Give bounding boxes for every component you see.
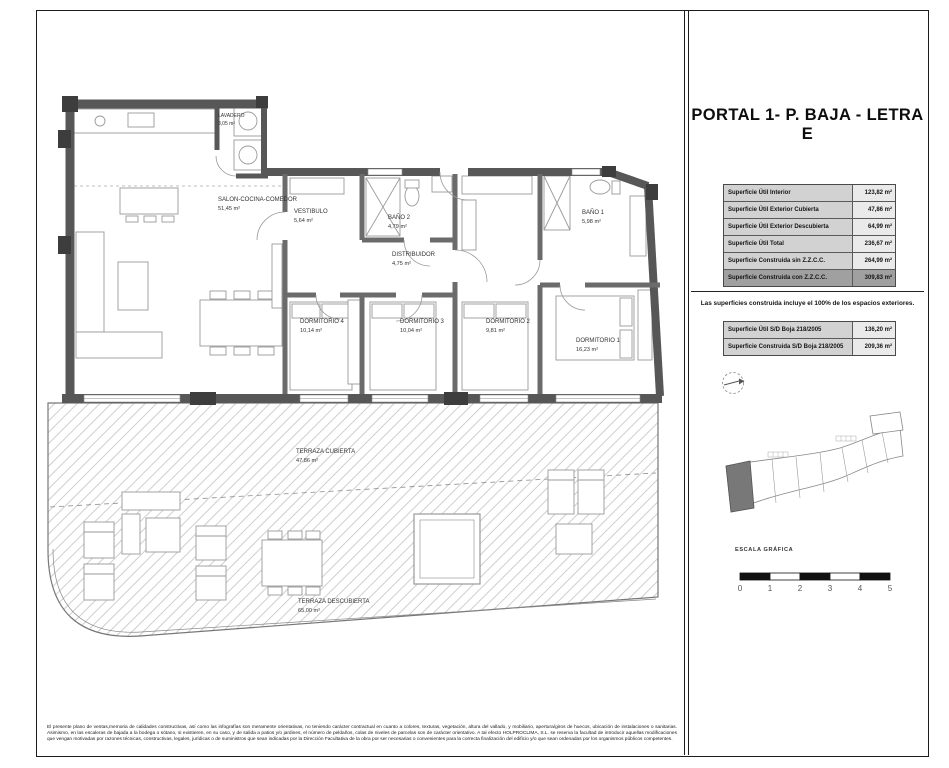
row-label: Superficie Construida con Z.Z.C.C. bbox=[724, 270, 853, 286]
table-row: Superficie Construida sin Z.Z.C.C. 264,9… bbox=[724, 253, 895, 270]
scale-tick: 5 bbox=[884, 584, 896, 593]
room-area-dorm2: 9,81 m² bbox=[486, 328, 505, 334]
scale-tick: 2 bbox=[794, 584, 806, 593]
room-label-terraza-descubierta: TERRAZA DESCUBIERTA bbox=[298, 599, 369, 605]
room-area-bano1: 5,98 m² bbox=[582, 219, 601, 225]
kitchen-island bbox=[120, 188, 178, 214]
bed-dorm3 bbox=[370, 302, 436, 390]
room-area-bano2: 4,79 m² bbox=[388, 224, 407, 230]
bed-dorm2 bbox=[462, 302, 528, 390]
room-area-dorm1: 16,23 m² bbox=[576, 347, 598, 353]
toilet-1 bbox=[590, 180, 610, 194]
room-label-bano1: BAÑO 1 bbox=[582, 209, 605, 216]
room-label-dorm4: DORMITORIO 4 bbox=[300, 319, 345, 325]
room-area-vestibulo: 5,64 m² bbox=[294, 218, 313, 224]
row-value: 309,83 m² bbox=[853, 270, 895, 286]
key-plan-highlighted-unit bbox=[726, 461, 754, 512]
north-arrow-icon bbox=[723, 373, 745, 394]
scale-bar bbox=[740, 573, 890, 580]
table-row: Superficie Útil Total 236,67 m² bbox=[724, 236, 895, 253]
table-row: Superficie Construida S/D Boja 218/2005 … bbox=[724, 339, 895, 355]
row-value: 136,20 m² bbox=[853, 322, 895, 338]
washer bbox=[234, 106, 262, 136]
table-row-highlighted: Superficie Construida con Z.Z.C.C. 309,8… bbox=[724, 270, 895, 286]
key-plan bbox=[726, 412, 903, 512]
table-row: Superficie Útil Interior 123,82 m² bbox=[724, 185, 895, 202]
row-label: Superficie Construida S/D Boja 218/2005 bbox=[724, 339, 853, 355]
scale-tick: 4 bbox=[854, 584, 866, 593]
room-label-dorm3: DORMITORIO 3 bbox=[400, 319, 445, 325]
row-label: Superficie Útil Interior bbox=[724, 185, 853, 201]
surface-note: Las superficies construida incluye el 10… bbox=[690, 300, 925, 307]
room-label-lavadero: LAVADERO bbox=[218, 113, 245, 119]
sofa bbox=[76, 232, 104, 332]
room-area-terraza-descubierta: 65,00 m² bbox=[298, 608, 320, 614]
scale-label: ESCALA GRÁFICA bbox=[735, 547, 793, 553]
toilet-2 bbox=[405, 186, 419, 206]
scale-tick: 0 bbox=[734, 584, 746, 593]
scale-tick: 3 bbox=[824, 584, 836, 593]
row-value: 264,99 m² bbox=[853, 253, 895, 269]
row-label: Superficie Útil S/D Boja 218/2005 bbox=[724, 322, 853, 338]
room-area-distribuidor: 4,75 m² bbox=[392, 261, 411, 267]
row-value: 123,82 m² bbox=[853, 185, 895, 201]
room-label-salon: SALON-COCINA-COMEDOR bbox=[218, 197, 298, 203]
legal-disclaimer: El presente plano de ventas,memoria de c… bbox=[47, 725, 677, 742]
row-value: 209,36 m² bbox=[853, 339, 895, 355]
row-label: Superficie Útil Total bbox=[724, 236, 853, 252]
room-label-terraza-cubierta: TERRAZA CUBIERTA bbox=[296, 449, 355, 455]
room-area-salon: 51,45 m² bbox=[218, 206, 240, 212]
dining-table bbox=[200, 300, 282, 346]
room-label-dorm1: DORMITORIO 1 bbox=[576, 338, 621, 344]
section-divider-line bbox=[691, 291, 924, 292]
bed-dorm4 bbox=[290, 302, 352, 390]
room-area-terraza-cubierta: 47,86 m² bbox=[296, 458, 318, 464]
row-label: Superficie Útil Exterior Descubierta bbox=[724, 219, 853, 235]
boja-table: Superficie Útil S/D Boja 218/2005 136,20… bbox=[723, 321, 896, 356]
page-title: PORTAL 1- P. BAJA - LETRA E bbox=[689, 106, 926, 144]
room-label-vestibulo: VESTIBULO bbox=[294, 209, 328, 215]
surface-table: Superficie Útil Interior 123,82 m² Super… bbox=[723, 184, 896, 287]
row-value: 236,67 m² bbox=[853, 236, 895, 252]
room-label-dorm2: DORMITORIO 2 bbox=[486, 319, 531, 325]
scale-tick: 1 bbox=[764, 584, 776, 593]
room-label-bano2: BAÑO 2 bbox=[388, 214, 411, 221]
room-label-distribuidor: DISTRIBUIDOR bbox=[392, 252, 436, 258]
room-area-dorm4: 10,14 m² bbox=[300, 328, 322, 334]
row-value: 47,86 m² bbox=[853, 202, 895, 218]
row-label: Superficie Útil Exterior Cubierta bbox=[724, 202, 853, 218]
room-area-lavadero: 3,05 m² bbox=[218, 121, 235, 127]
table-row: Superficie Útil Exterior Descubierta 64,… bbox=[724, 219, 895, 236]
row-label: Superficie Construida sin Z.Z.C.C. bbox=[724, 253, 853, 269]
vanity-1 bbox=[630, 196, 646, 256]
table-row: Superficie Útil S/D Boja 218/2005 136,20… bbox=[724, 322, 895, 339]
row-value: 64,99 m² bbox=[853, 219, 895, 235]
dryer bbox=[234, 140, 262, 170]
room-area-dorm3: 10,04 m² bbox=[400, 328, 422, 334]
table-row: Superficie Útil Exterior Cubierta 47,86 … bbox=[724, 202, 895, 219]
sink-2 bbox=[432, 176, 452, 192]
